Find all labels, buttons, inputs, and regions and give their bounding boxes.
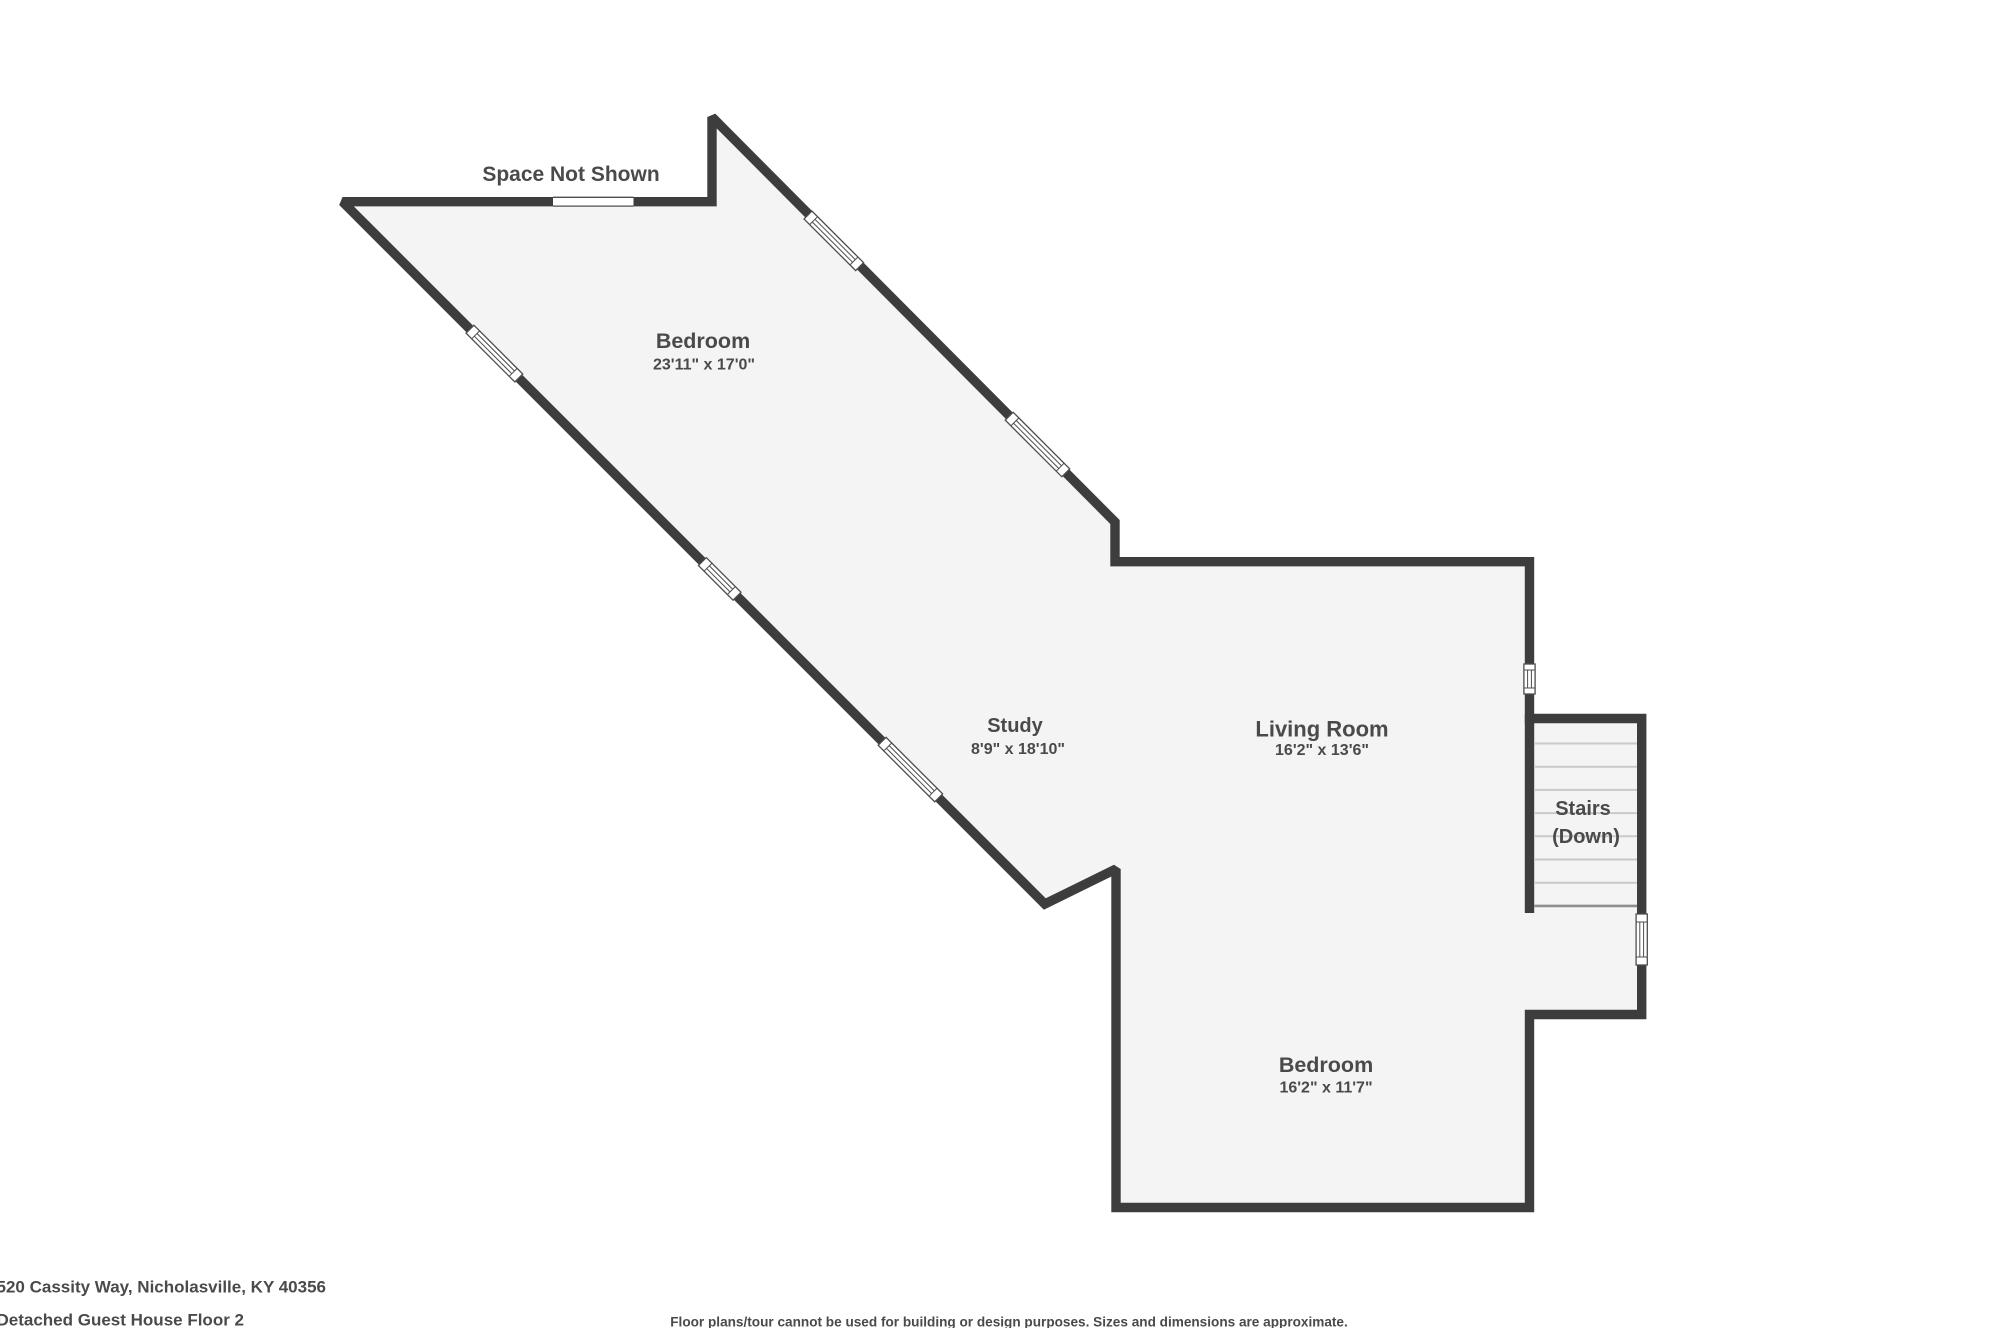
svg-text:Living Room: Living Room [1255, 717, 1388, 742]
svg-text:8'9" x 18'10": 8'9" x 18'10" [971, 741, 1065, 758]
svg-text:520 Cassity Way, Nicholasville: 520 Cassity Way, Nicholasville, KY 40356 [0, 1278, 326, 1297]
svg-text:Floor plans/tour cannot be use: Floor plans/tour cannot be used for buil… [670, 1314, 1348, 1328]
svg-text:(Down): (Down) [1552, 826, 1620, 848]
svg-text:Stairs: Stairs [1555, 798, 1611, 820]
svg-text:Study: Study [987, 715, 1043, 737]
svg-text:Bedroom: Bedroom [656, 329, 750, 353]
svg-text:Bedroom: Bedroom [1279, 1053, 1373, 1077]
svg-text:Detached Guest House Floor 2: Detached Guest House Floor 2 [0, 1311, 244, 1328]
svg-text:Space Not Shown: Space Not Shown [482, 163, 659, 186]
svg-text:16'2" x 13'6": 16'2" x 13'6" [1275, 742, 1369, 759]
svg-text:16'2" x 11'7": 16'2" x 11'7" [1279, 1080, 1372, 1097]
svg-text:23'11" x 17'0": 23'11" x 17'0" [653, 357, 755, 374]
